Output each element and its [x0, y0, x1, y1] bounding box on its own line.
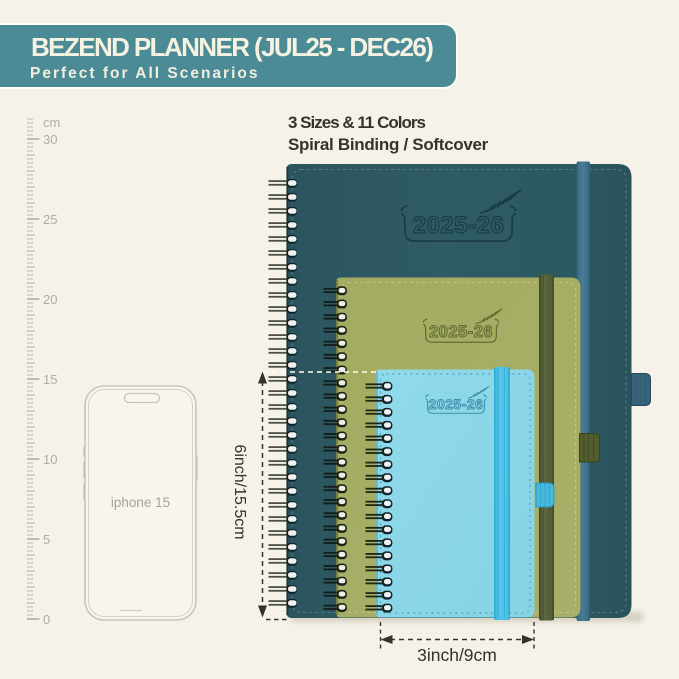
svg-text:2025-26: 2025-26 [429, 323, 493, 341]
svg-text:2025-26: 2025-26 [429, 396, 484, 412]
svg-text:15: 15 [43, 372, 57, 387]
svg-text:cm: cm [43, 115, 60, 130]
svg-text:2025-26: 2025-26 [413, 212, 505, 239]
svg-text:5: 5 [43, 532, 50, 547]
svg-text:3inch/9cm: 3inch/9cm [417, 645, 497, 665]
svg-text:25: 25 [43, 212, 57, 227]
svg-text:20: 20 [43, 292, 57, 307]
svg-text:6inch/15.5cm: 6inch/15.5cm [231, 444, 248, 539]
svg-text:iphone 15: iphone 15 [111, 495, 170, 510]
svg-text:30: 30 [43, 132, 57, 147]
svg-text:0: 0 [43, 612, 50, 627]
svg-text:10: 10 [43, 452, 57, 467]
